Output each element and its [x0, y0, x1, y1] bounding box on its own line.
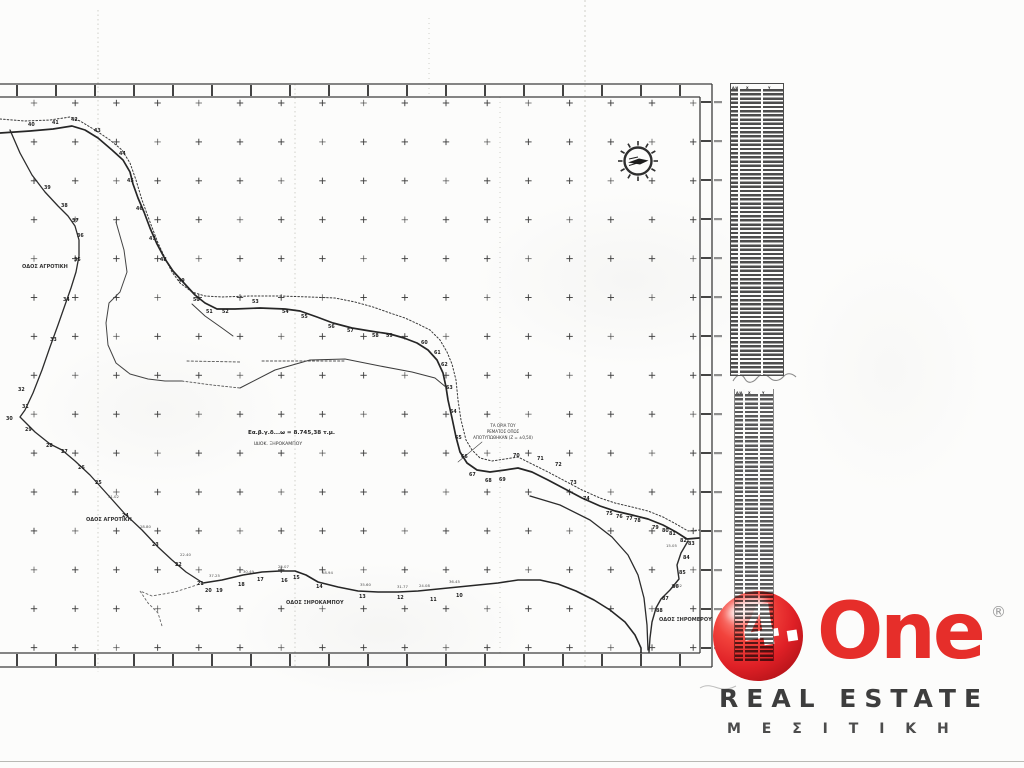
edge-length-label: 25.07 [278, 564, 289, 569]
stream-note-line1: ΤΑ ΟΡΙΑ ΤΟΥ [489, 423, 516, 428]
area-label-line2: ΙΔΙΟΚ. ΞΗΡΟΚΑΜΠΟΥ [254, 441, 302, 447]
vertex-number: 40 [28, 122, 35, 128]
edge-coordinate-label [714, 413, 722, 415]
vertex-number: 18 [238, 582, 245, 588]
road-label: ΟΔΟΣ ΑΓΡΟΤΙΚΗ [22, 264, 68, 270]
area-label-line1: Εα.β.γ.δ...ω = 8.745,38 τ.μ. [248, 430, 335, 436]
road-label: ΟΔΟΣ ΞΗΡΟΜΕΡΟΥ [659, 617, 712, 623]
vertex-number: 69 [499, 477, 506, 483]
vertex-number: 48 [160, 257, 167, 263]
vertex-number: 31 [22, 404, 29, 410]
vertex-number: 66 [461, 454, 468, 460]
vertex-number: 27 [61, 449, 68, 455]
vertex-number: 15 [293, 575, 300, 581]
vertex-number: 79 [652, 525, 659, 531]
vertex-number: 83 [688, 541, 695, 547]
road-label: ΟΔΟΣ ΑΓΡΟΤΙΚΗ [86, 517, 132, 523]
vertex-number: 49 [178, 278, 185, 284]
vertex-number: 41 [52, 120, 59, 126]
vertex-number: 77 [626, 516, 633, 522]
scanned-survey-sheet: 4041424344454647484950515253545556575859… [0, 0, 1024, 768]
vertex-number: 46 [136, 206, 143, 212]
vertex-number: 71 [537, 456, 544, 462]
vertex-number: 58 [372, 333, 379, 339]
vertex-number: 19 [216, 588, 223, 594]
vertex-number: 35 [74, 257, 81, 263]
vertex-number: 20 [205, 588, 212, 594]
edge-coordinate-label [714, 218, 722, 220]
compass-icon [618, 141, 658, 181]
vertex-number: 51 [206, 309, 213, 315]
logo-subtitle-greek: Μ Ε Σ Ι Τ Ι Κ Η [727, 721, 957, 737]
vertex-number: 12 [397, 595, 404, 601]
vertex-number: 21 [197, 581, 204, 587]
vertex-number: 29 [25, 427, 32, 433]
edge-length-label: 22.40 [180, 552, 191, 557]
vertex-number: 88 [656, 608, 663, 614]
scan-page-edge-line [0, 761, 1024, 762]
vertex-number: 43 [94, 128, 101, 134]
vertex-number: 28 [46, 443, 53, 449]
edge-coordinate-label [714, 374, 722, 376]
vertex-number: 62 [441, 362, 448, 368]
edge-length-label: 28.80 [140, 524, 151, 529]
edge-coordinate-label [714, 491, 722, 493]
dashed-road-edge [140, 583, 203, 626]
vertex-number: 52 [222, 309, 229, 315]
inner-contour-dashed [182, 381, 240, 388]
logo-brand-text: One [817, 592, 983, 674]
edge-coordinate-label [714, 257, 722, 259]
edge-length-label: 15.05 [666, 543, 677, 548]
vertex-number: 38 [61, 203, 68, 209]
vertex-number: 45 [127, 178, 134, 184]
vertex-number: 22 [175, 562, 182, 568]
vertex-number: 81 [669, 531, 676, 537]
edge-coordinate-label [714, 296, 722, 298]
vertex-number: 73 [570, 480, 577, 486]
vertex-number: 76 [616, 514, 623, 520]
vertex-number: 75 [606, 511, 613, 517]
vertex-number: 63 [446, 385, 453, 391]
vertex-number: 37 [72, 218, 79, 224]
handwritten-note [733, 374, 796, 383]
edge-length-label: 24.08 [419, 583, 430, 588]
vertex-number: 42 [71, 117, 78, 123]
edge-coordinate-label [714, 530, 722, 532]
vertex-number: 64 [450, 409, 457, 415]
table-rows [735, 394, 773, 661]
edge-length-label: 31.02 [108, 494, 119, 499]
edge-length-label: 31.77 [397, 584, 408, 589]
registered-trademark-icon: ® [991, 603, 1006, 621]
vertex-number: 13 [359, 594, 366, 600]
vertex-number: 56 [328, 324, 335, 330]
vertex-number: 39 [44, 185, 51, 191]
vertex-number: 65 [455, 435, 462, 441]
edge-coordinate-label [714, 335, 722, 337]
edge-coordinate-label [714, 101, 722, 103]
vertex-number: 87 [662, 596, 669, 602]
vertex-number: 25 [95, 480, 102, 486]
parcel-boundary-dotted-bank [0, 117, 700, 531]
edge-coordinate-label [714, 140, 722, 142]
vertex-number: 72 [555, 462, 562, 468]
vertex-number: 70 [513, 453, 520, 459]
vertex-number: 61 [434, 350, 441, 356]
vertex-number: 34 [63, 297, 70, 303]
vertex-number: 60 [421, 340, 428, 346]
edge-length-label: 28.94 [322, 570, 333, 575]
stream-note-line2: ΡΕΜΑΤΟΣ ΟΠΩΣ [487, 429, 520, 434]
vertex-number: 82 [680, 538, 687, 544]
edge-length-label: 30.49 [243, 569, 254, 574]
vertex-number: 55 [301, 314, 308, 320]
vertex-number: 26 [78, 465, 85, 471]
vertex-number: 54 [282, 309, 289, 315]
vertex-number: 23 [152, 542, 159, 548]
edge-coordinate-label [714, 179, 722, 181]
vertex-number: 84 [683, 555, 690, 561]
vertex-number: 32 [18, 387, 25, 393]
vertex-number: 33 [50, 337, 57, 343]
stream-left-bank [240, 359, 447, 388]
vertex-number: 59 [386, 333, 393, 339]
edge-length-label: 37.25 [209, 573, 220, 578]
road-label: ΟΔΟΣ ΞΗΡΟΚΑΜΠΟΥ [286, 600, 344, 606]
vertex-number: 53 [252, 299, 259, 305]
edge-length-label: 36.45 [449, 579, 460, 584]
vertex-number: 10 [456, 593, 463, 599]
vertex-number: 30 [6, 416, 13, 422]
vertex-number: 47 [149, 236, 156, 242]
edge-length-label: 35.60 [360, 582, 371, 587]
west-boundary-line [10, 130, 203, 583]
vertex-number: 67 [469, 472, 476, 478]
vertex-number: 85 [679, 570, 686, 576]
vertex-number: 57 [347, 328, 354, 334]
dashed-limit-line [187, 361, 240, 362]
coordinates-table-2 [734, 389, 774, 661]
vertex-number: 78 [634, 518, 641, 524]
edge-coordinate-label [714, 452, 722, 454]
vertex-number: 14 [316, 584, 323, 590]
vertex-number: 16 [281, 578, 288, 584]
vertex-number: 68 [485, 478, 492, 484]
vertex-number: 17 [257, 577, 264, 583]
vertex-number: 11 [430, 597, 437, 603]
vertex-number: 44 [119, 151, 126, 157]
vertex-number: 74 [583, 496, 590, 502]
vertex-number: 36 [77, 233, 84, 239]
edge-coordinate-label [714, 569, 722, 571]
stream-note-line3: ΑΠΟΤΥΠΩΘΗΚΑΝ (Ζ = ±0,50) [473, 435, 533, 440]
inner-contour-hook [106, 222, 182, 381]
logo-subtitle-real-estate: REAL ESTATE [719, 684, 989, 713]
vertex-number: 50 [193, 297, 200, 303]
edge-length-label: 12.92 [671, 583, 682, 588]
coordinates-table-1 [731, 84, 783, 375]
